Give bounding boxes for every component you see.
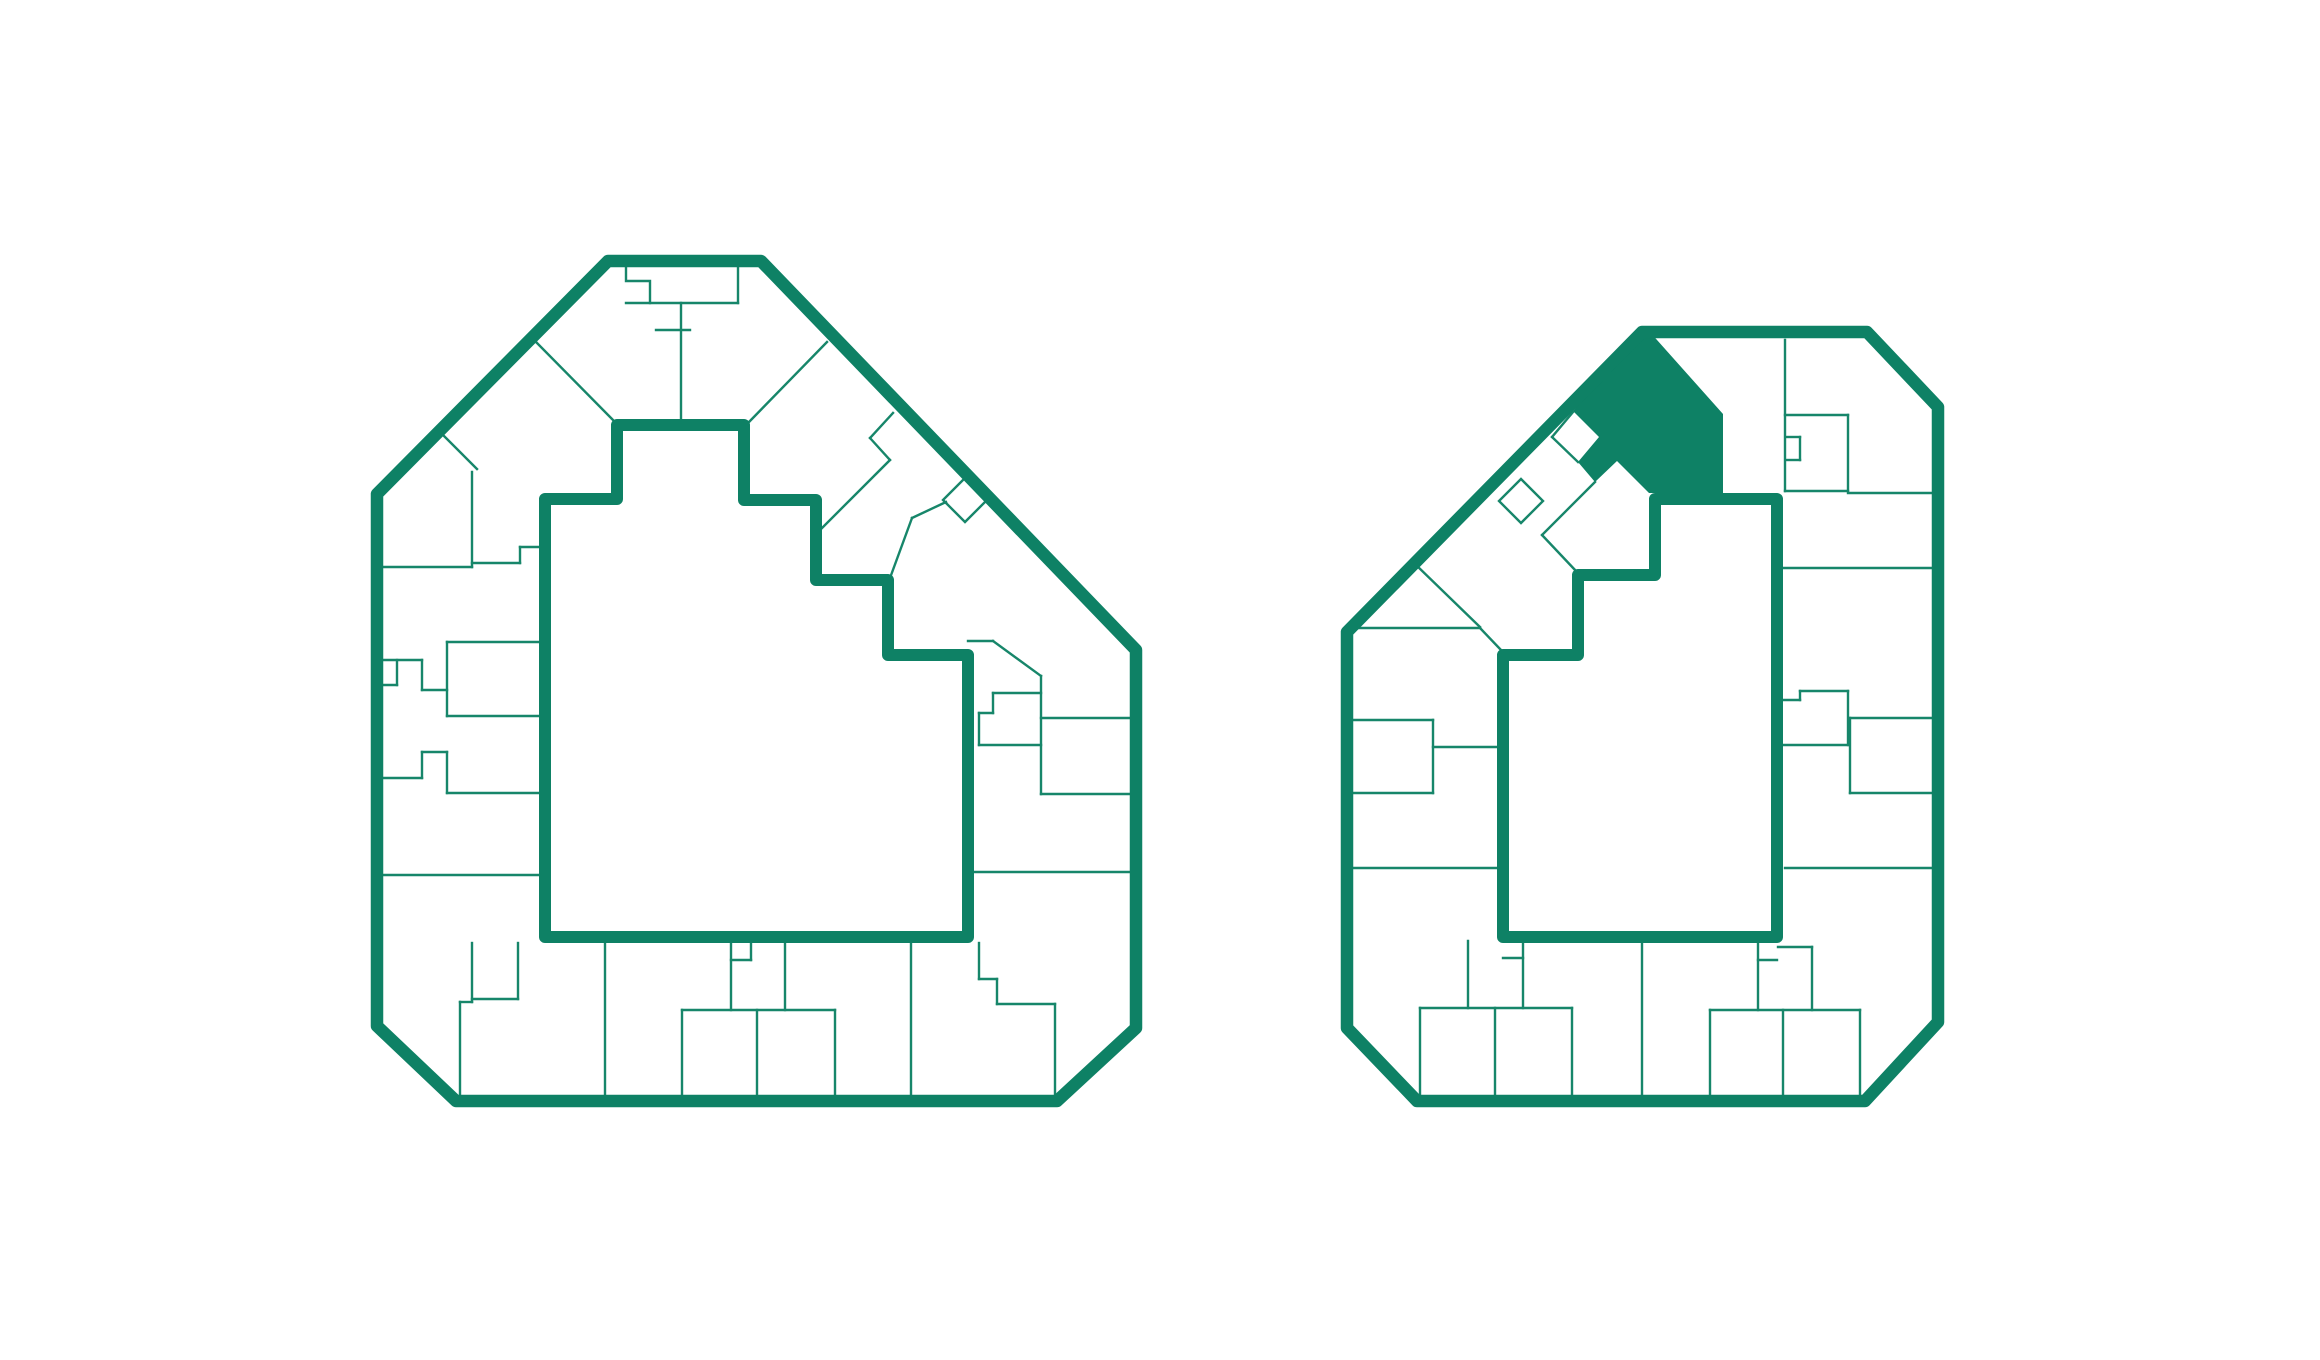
unit-divider xyxy=(870,413,893,438)
floor-plan-right[interactable] xyxy=(1347,331,1938,1101)
floor-plan-page xyxy=(0,0,2320,1360)
unit-divider xyxy=(1552,437,1578,462)
unit-divider xyxy=(890,518,912,578)
unit-divider xyxy=(626,263,650,303)
highlighted-unit[interactable] xyxy=(1573,331,1723,493)
unit-divider xyxy=(870,438,890,460)
unit-divider xyxy=(1542,482,1595,535)
courtyard-wall xyxy=(1503,499,1777,937)
unit-divider xyxy=(1480,628,1501,650)
unit-divider xyxy=(1499,479,1543,523)
unit-divider xyxy=(912,502,946,518)
unit-divider xyxy=(440,432,477,469)
unit-divider xyxy=(1542,535,1576,571)
unit-divider xyxy=(1415,564,1480,627)
unit-divider xyxy=(536,342,615,422)
unit-divider xyxy=(818,460,890,532)
outer-wall xyxy=(377,261,1136,1101)
unit-divider xyxy=(993,641,1041,676)
floor-plan-left[interactable] xyxy=(377,261,1136,1101)
floor-plans-canvas xyxy=(0,0,2320,1360)
unit-divider xyxy=(748,342,827,423)
courtyard-wall xyxy=(545,425,968,937)
